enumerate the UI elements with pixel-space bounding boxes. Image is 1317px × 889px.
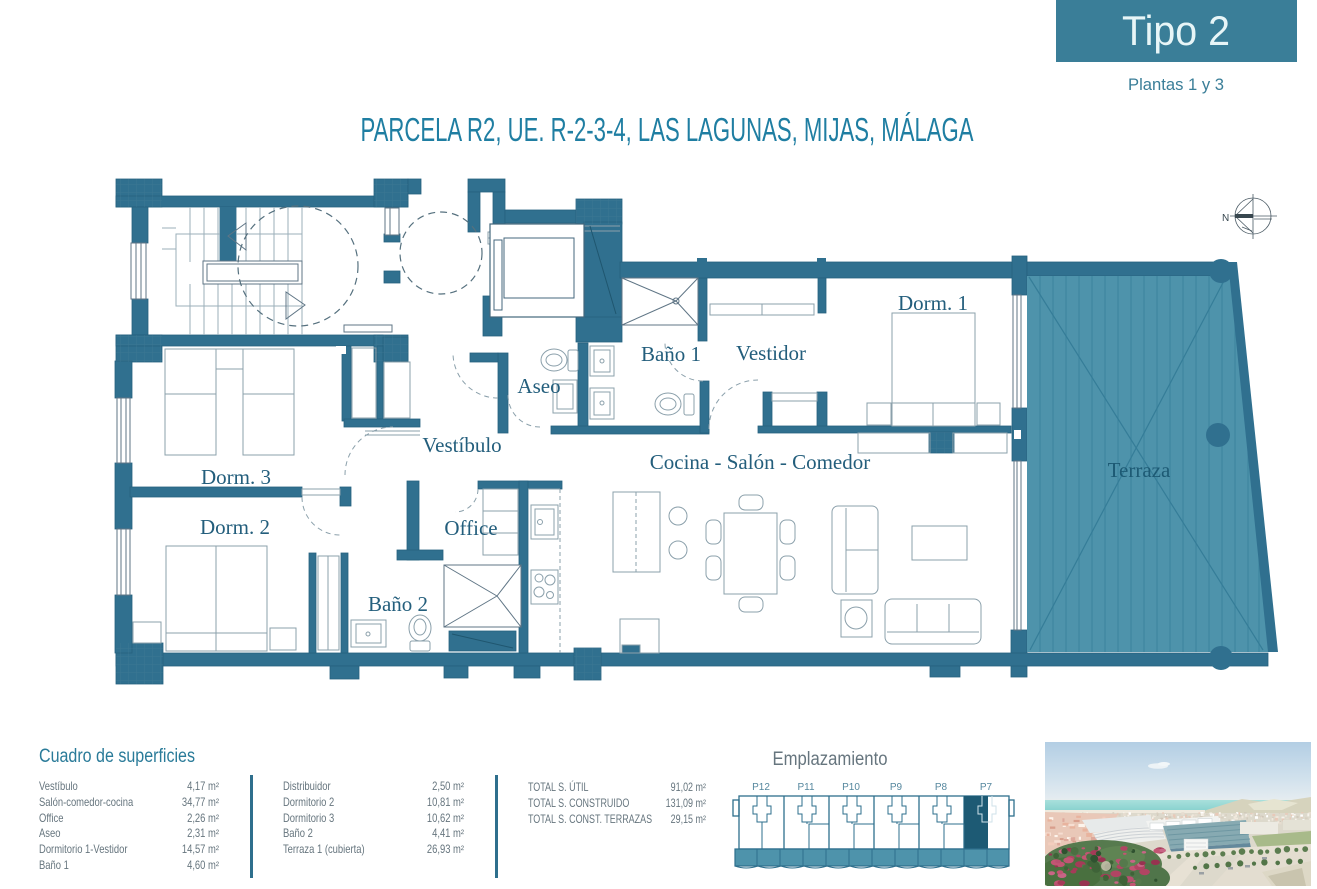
svg-text:TOTAL S. CONSTRUIDO: TOTAL S. CONSTRUIDO [528,798,629,810]
svg-text:TOTAL S. ÚTIL: TOTAL S. ÚTIL [528,780,589,794]
svg-text:4,17 m²: 4,17 m² [187,780,219,793]
svg-text:Dormitorio 3: Dormitorio 3 [283,812,334,825]
svg-text:Dormitorio 1-Vestidor: Dormitorio 1-Vestidor [39,843,128,856]
svg-text:Tipo 2: Tipo 2 [1122,7,1230,54]
svg-text:TOTAL S. CONST. TERRAZAS: TOTAL S. CONST. TERRAZAS [528,814,652,826]
svg-text:131,09 m²: 131,09 m² [666,798,707,810]
svg-text:P7: P7 [980,782,993,793]
svg-text:Terraza: Terraza [1108,458,1171,482]
svg-text:Dorm. 3: Dorm. 3 [201,465,271,489]
svg-text:Cuadro de superficies: Cuadro de superficies [39,746,195,767]
svg-text:Dorm. 2: Dorm. 2 [200,515,270,539]
svg-text:Baño 2: Baño 2 [283,827,313,840]
svg-text:Baño 1: Baño 1 [641,342,701,366]
svg-text:Vestidor: Vestidor [736,341,806,365]
svg-text:Salón-comedor-cocina: Salón-comedor-cocina [39,796,133,809]
svg-text:2,50 m²: 2,50 m² [432,780,464,793]
svg-text:Plantas 1 y 3: Plantas 1 y 3 [1128,75,1224,94]
svg-text:34,77 m²: 34,77 m² [182,796,220,809]
svg-text:N: N [1222,213,1229,224]
svg-text:Distribuidor: Distribuidor [283,780,331,793]
svg-text:2,26 m²: 2,26 m² [187,812,219,825]
svg-text:Aseo: Aseo [517,374,560,398]
svg-text:Vestíbulo: Vestíbulo [422,433,501,457]
svg-text:P10: P10 [842,782,860,793]
svg-text:Emplazamiento: Emplazamiento [773,749,888,770]
svg-text:Office: Office [444,516,497,540]
svg-text:P12: P12 [752,782,770,793]
svg-text:10,62 m²: 10,62 m² [427,812,465,825]
svg-text:Office: Office [39,812,64,825]
svg-text:Vestíbulo: Vestíbulo [39,780,78,793]
svg-text:Baño 2: Baño 2 [368,592,428,616]
svg-text:PARCELA R2, UE. R-2-3-4, LAS L: PARCELA R2, UE. R-2-3-4, LAS LAGUNAS, MI… [361,111,974,148]
svg-text:Aseo: Aseo [39,827,61,840]
svg-text:Dormitorio 2: Dormitorio 2 [283,796,334,809]
svg-text:4,41 m²: 4,41 m² [432,827,464,840]
svg-text:Baño 1: Baño 1 [39,859,69,872]
svg-text:29,15 m²: 29,15 m² [671,814,707,826]
svg-text:10,81 m²: 10,81 m² [427,796,465,809]
svg-text:2,31 m²: 2,31 m² [187,827,219,840]
svg-text:Cocina - Salón - Comedor: Cocina - Salón - Comedor [650,450,870,474]
svg-text:Dorm. 1: Dorm. 1 [898,291,968,315]
svg-text:P9: P9 [890,782,903,793]
svg-text:4,60 m²: 4,60 m² [187,859,219,872]
svg-text:P8: P8 [935,782,948,793]
svg-text:14,57 m²: 14,57 m² [182,843,220,856]
svg-text:91,02 m²: 91,02 m² [671,782,707,794]
svg-text:P11: P11 [797,782,814,793]
svg-text:26,93 m²: 26,93 m² [427,843,465,856]
svg-text:Terraza 1 (cubierta): Terraza 1 (cubierta) [283,843,365,856]
